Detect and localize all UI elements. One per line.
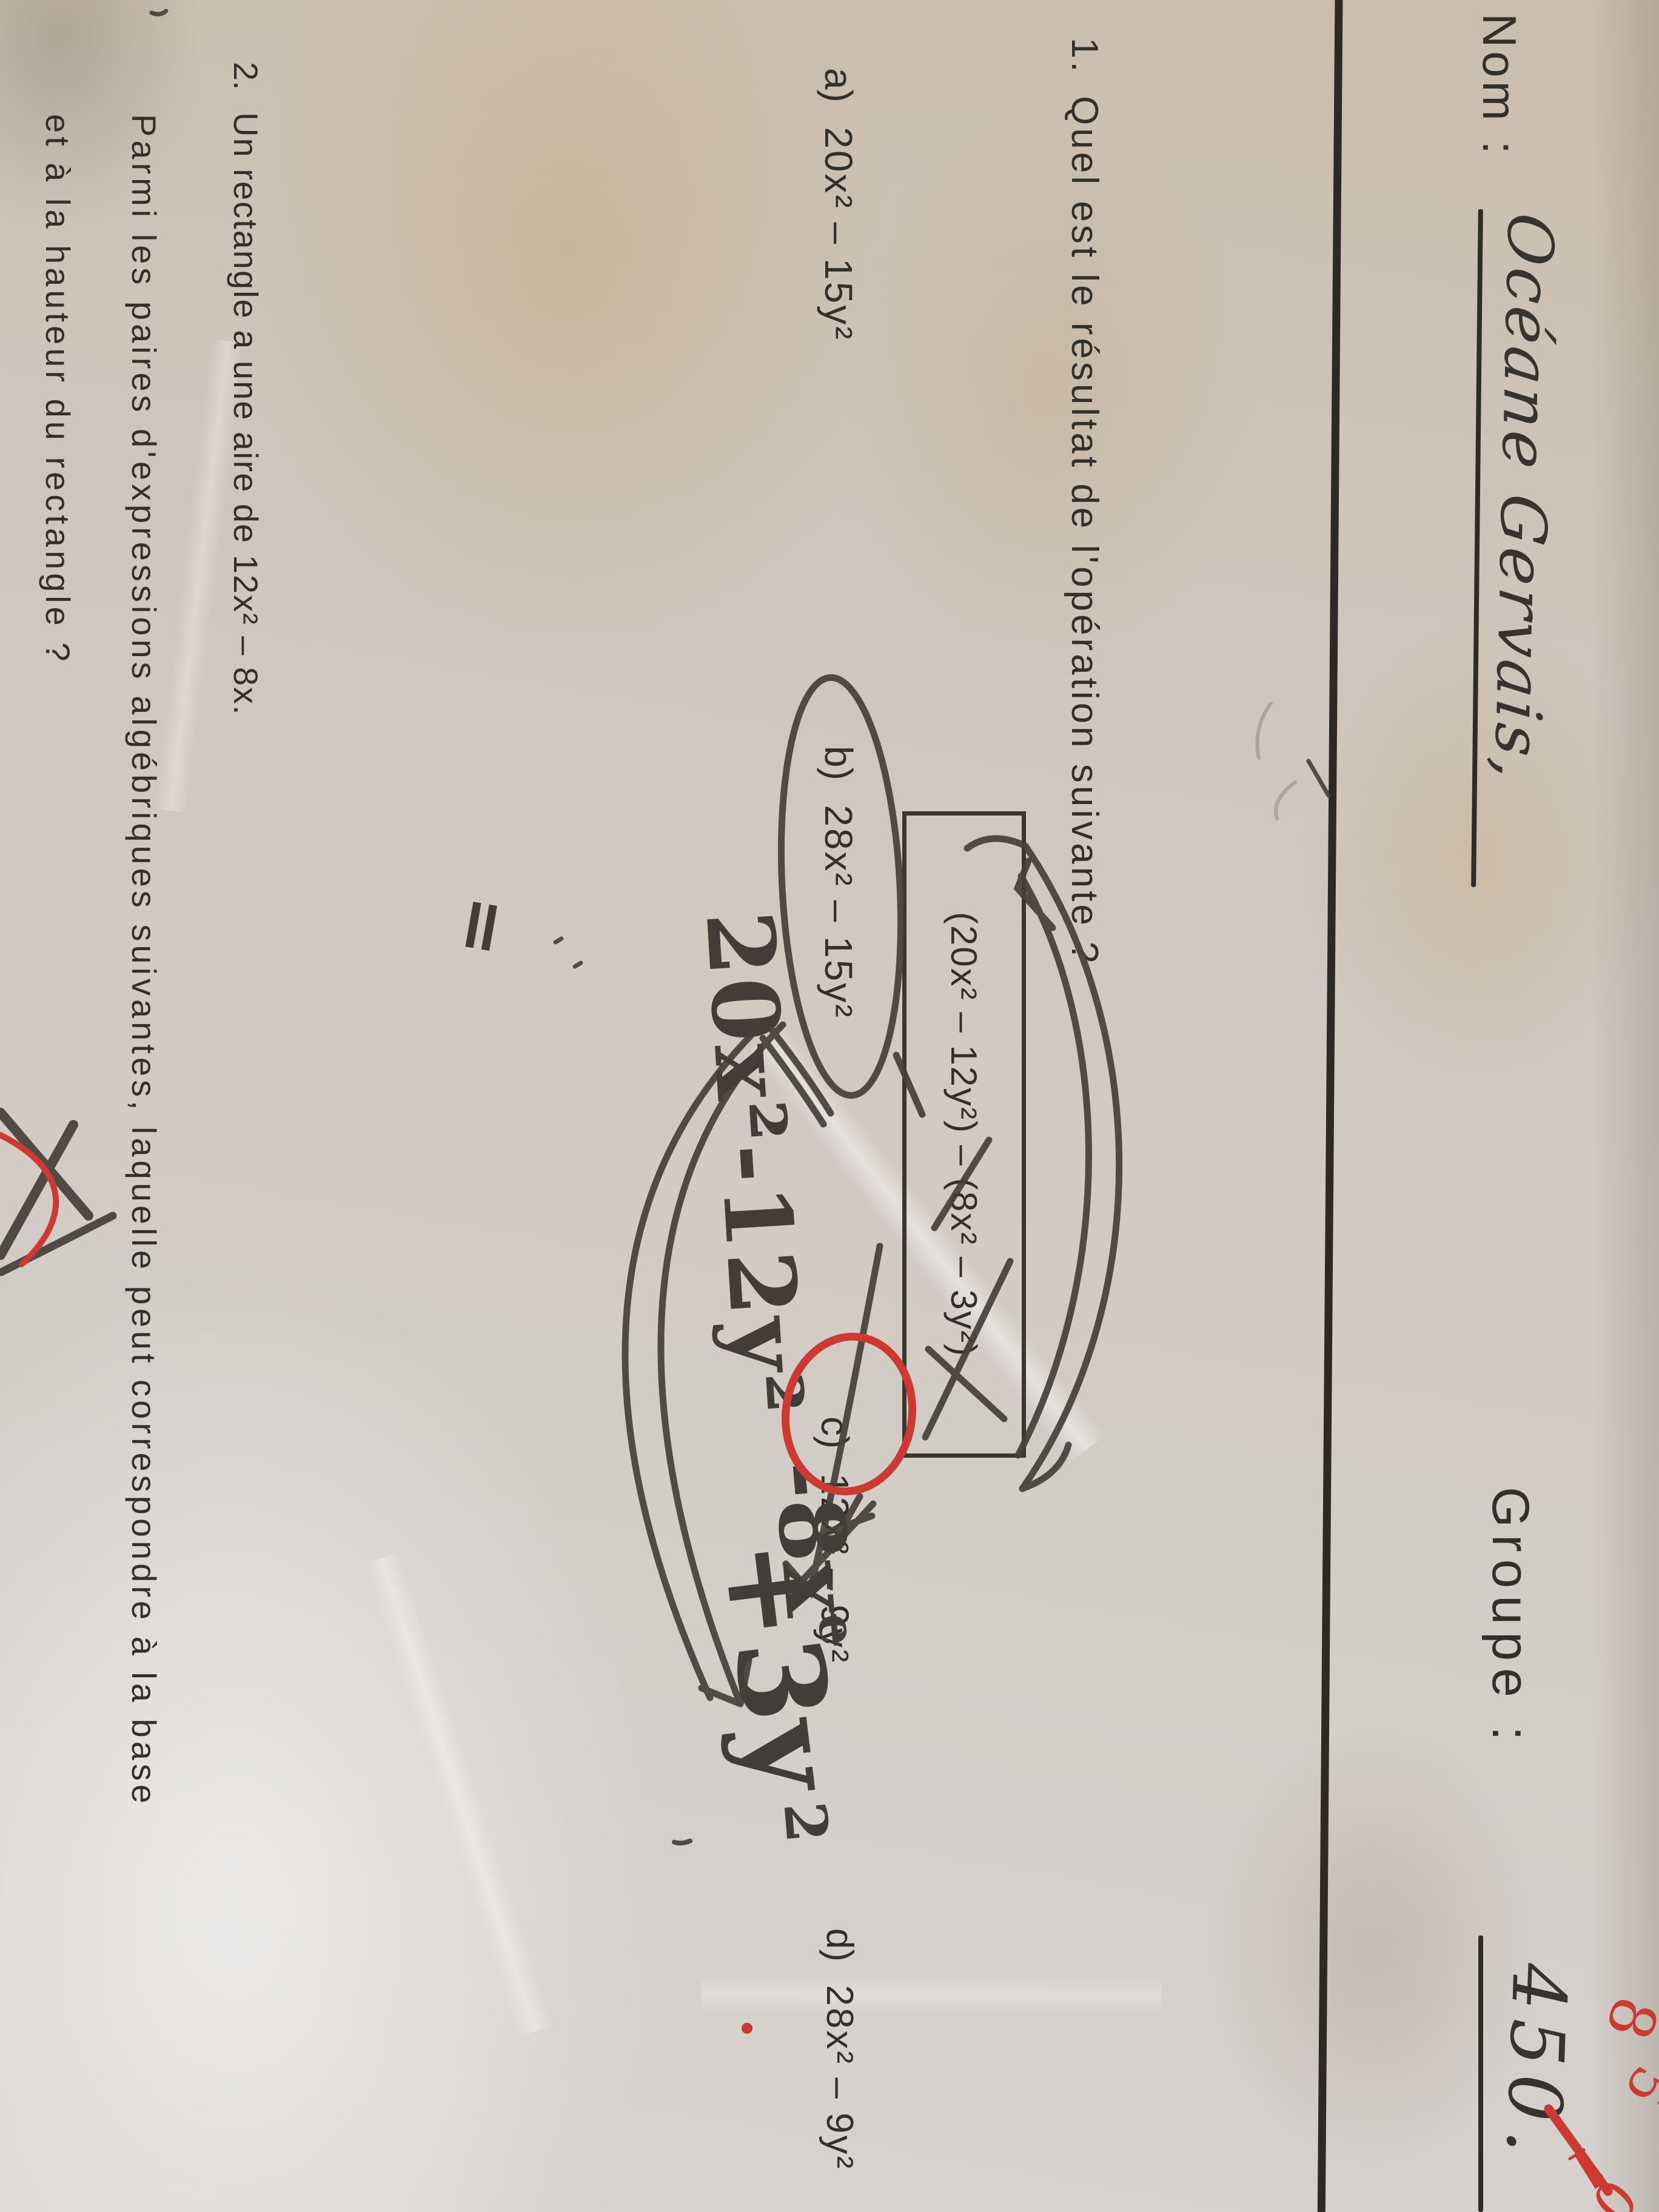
pencil-speck	[555, 939, 581, 967]
pencil-tick	[1309, 761, 1329, 796]
pencil-hook	[967, 839, 1025, 848]
pencil-arc	[1022, 846, 1119, 1489]
worksheet-sheet: Nom : Océane Gervais, Groupe : 450. 1. Q…	[0, 0, 1659, 2212]
pencil-speck	[152, 11, 166, 14]
pencil-slash	[896, 1055, 922, 1114]
pencil-arrow-curve	[625, 1034, 752, 1698]
annotation-strokes	[0, 0, 1659, 2212]
eraser-ghost-mark	[1258, 703, 1296, 819]
worksheet-photo: Nom : Océane Gervais, Groupe : 450. 1. Q…	[0, 0, 1659, 2212]
pencil-tick	[1017, 861, 1053, 928]
pencil-arc	[1018, 876, 1089, 1455]
red-dot	[742, 2023, 752, 2034]
pencil-slash	[934, 1140, 989, 1228]
pencil-speck	[674, 1841, 690, 1843]
pencil-oval-option-b	[771, 674, 911, 1098]
red-grade-slash	[1549, 2109, 1608, 2191]
